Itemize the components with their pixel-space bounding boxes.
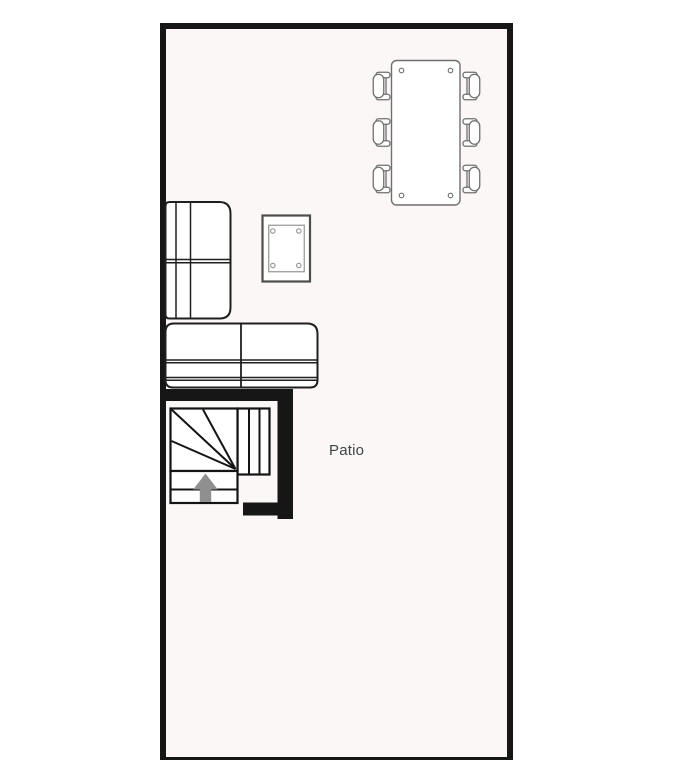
table-corner-dot [448, 68, 453, 73]
table-corner-dot [448, 193, 453, 198]
wall-horizontal-bottom [243, 503, 293, 516]
side-table-leg [271, 263, 275, 267]
dining-chair-left-1 [373, 72, 390, 100]
dining-chair-left-3 [373, 165, 390, 193]
dining-chair-right-1 [463, 72, 480, 100]
dining-table-set [373, 61, 480, 206]
side-table-leg [297, 263, 301, 267]
side-table-leg [297, 229, 301, 233]
dining-chair-right-2 [463, 119, 480, 147]
table-corner-dot [399, 193, 404, 198]
side-table-leg [271, 229, 275, 233]
stairs-straight-flight [238, 409, 270, 475]
table-corner-dot [399, 68, 404, 73]
wall-horizontal-top [160, 389, 293, 401]
dining-chair-right-3 [463, 165, 480, 193]
dining-chair-left-2 [373, 119, 390, 147]
sofa-bottom [166, 324, 318, 388]
sofa-left-wall [166, 202, 231, 319]
dining-table [392, 61, 461, 206]
floorplan-canvas: Patio [0, 0, 685, 760]
floorplan-drawing [0, 0, 685, 760]
wall-vertical-right [278, 389, 294, 519]
side-table [263, 216, 311, 282]
room-label: Patio [329, 442, 364, 460]
staircase [171, 409, 270, 504]
